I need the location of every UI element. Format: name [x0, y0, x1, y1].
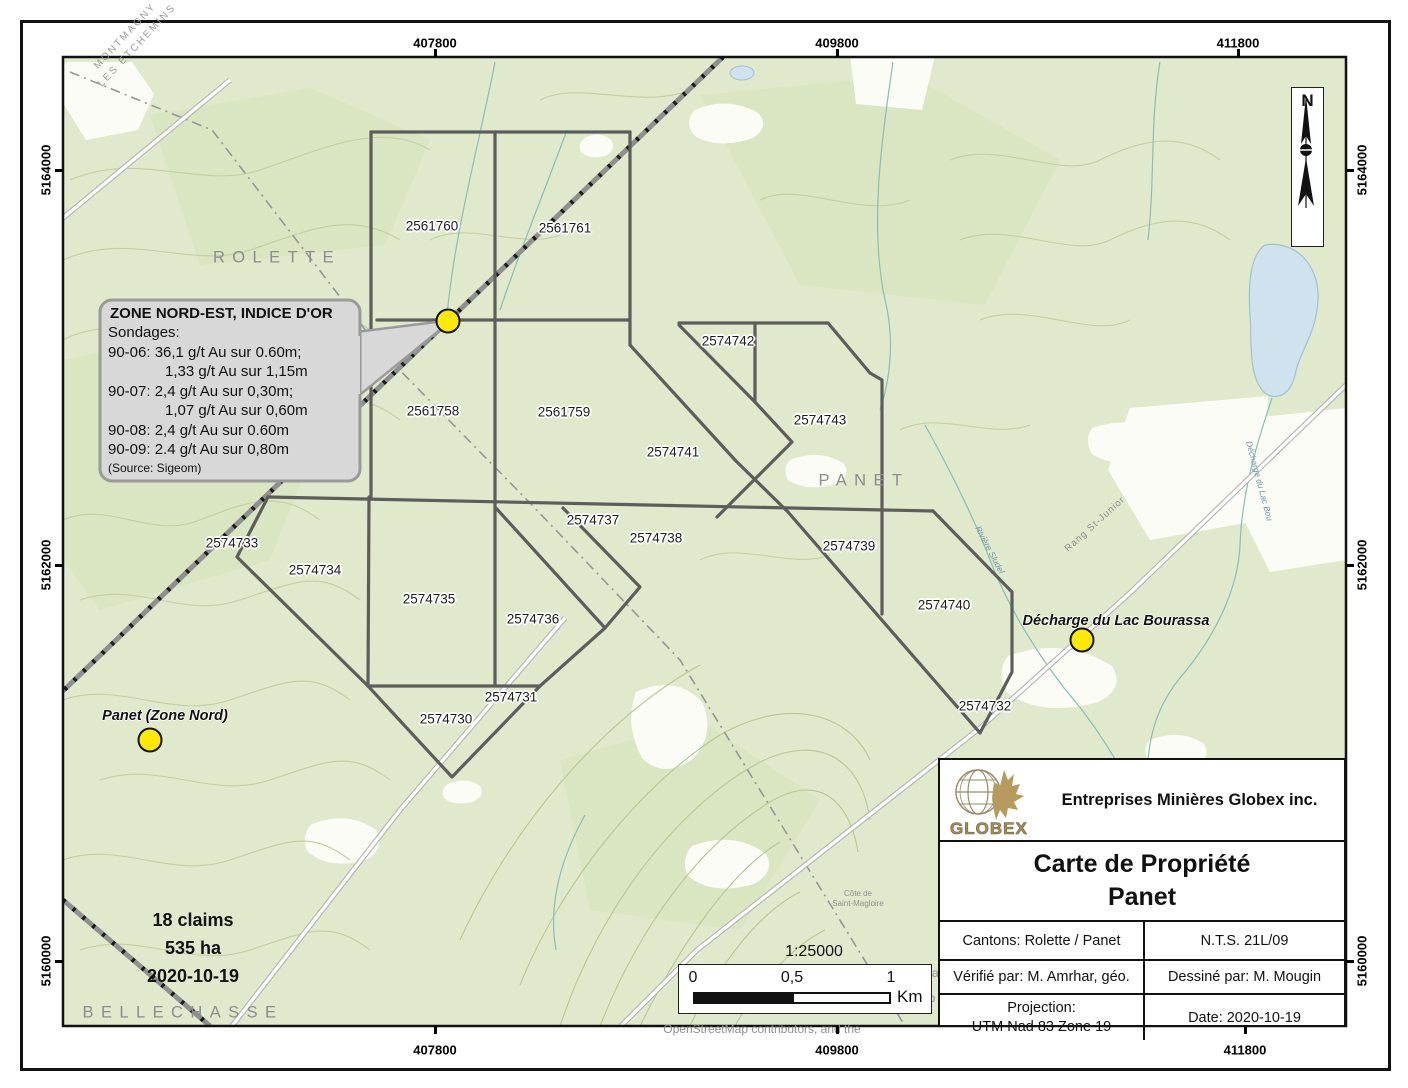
- poi-marker[interactable]: [1070, 628, 1095, 653]
- grid-tick: [434, 49, 437, 57]
- claim-label: 2574741: [647, 445, 700, 460]
- claim-label: 2574735: [403, 592, 456, 607]
- north-needle-icon: [1292, 88, 1320, 213]
- grid-coordinate: 411800: [1224, 1043, 1267, 1058]
- company-name: Entreprises Minières Globex inc.: [1035, 760, 1344, 840]
- scale-unit: Km: [897, 987, 923, 1007]
- scale-ratio: 1:25000: [785, 943, 843, 961]
- township-label: BELLECHASSE: [83, 1004, 284, 1023]
- callout-line: 1,33 g/t Au sur 1,15m: [108, 362, 354, 382]
- scale-05: 0,5: [781, 969, 803, 987]
- hill-label-1: Côte de: [844, 889, 873, 898]
- grid-tick: [1346, 960, 1354, 963]
- map-title-line2: Panet: [1108, 881, 1176, 914]
- claim-label: 2561761: [539, 221, 592, 236]
- grid-coordinate: 5162000: [39, 540, 54, 591]
- claim-label: 2574743: [794, 413, 847, 428]
- scale-bar-white-segment: [792, 992, 891, 1004]
- grid-coordinate: 5164000: [1355, 145, 1370, 196]
- globex-logo-icon: GLOBEX: [946, 762, 1034, 838]
- scale-0: 0: [689, 969, 698, 987]
- verified-cell: Vérifié par: M. Amrhar, géo.: [940, 961, 1145, 993]
- grid-coordinate: 5164000: [39, 145, 54, 196]
- summary-date: 2020-10-19: [147, 962, 239, 990]
- drawn-cell: Dessiné par: M. Mougin: [1145, 961, 1344, 993]
- map-sheet: Rang St-Junior Rivière Sludel Décharge d…: [0, 0, 1408, 1088]
- claim-label: 2574738: [630, 531, 683, 546]
- scale-1: 1: [887, 969, 896, 987]
- title-block: GLOBEX Entreprises Minières Globex inc. …: [938, 758, 1346, 1027]
- grid-coordinate: 5162000: [1355, 540, 1370, 591]
- date-cell: Date: 2020-10-19: [1145, 995, 1344, 1040]
- scale-bar-black-segment: [693, 992, 792, 1004]
- attribution-line: OpenStreetMap contributors, and the: [663, 1022, 860, 1036]
- claim-label: 2561758: [407, 404, 460, 419]
- poi-label: Panet (Zone Nord): [102, 708, 228, 724]
- projection-cell: Projection: UTM Nad 83 Zone 19: [940, 995, 1145, 1040]
- gold-showing-marker[interactable]: [436, 309, 461, 334]
- claim-label: 2574742: [702, 334, 755, 349]
- claim-label: 2574731: [485, 690, 538, 705]
- scale-bar: 0 0,5 1 Km: [678, 964, 932, 1014]
- callout-line: 90-07: 2,4 g/t Au sur 0,30m;: [108, 382, 354, 402]
- claim-label: 2574736: [507, 612, 560, 627]
- claim-label: 2574739: [823, 539, 876, 554]
- callout-lines: Sondages:90-06: 36,1 g/t Au sur 0.60m;1,…: [108, 323, 354, 460]
- globex-logo-text: GLOBEX: [950, 819, 1028, 838]
- map-title: Carte de Propriété Panet: [940, 842, 1344, 922]
- grid-coordinate: 5160000: [1355, 936, 1370, 987]
- grid-tick: [1346, 169, 1354, 172]
- map-title-line1: Carte de Propriété: [1034, 848, 1251, 881]
- claim-label: 2561760: [406, 219, 459, 234]
- grid-tick: [55, 960, 63, 963]
- summary-area: 535 ha: [147, 934, 239, 962]
- cantons-cell: Cantons: Rolette / Panet: [940, 922, 1145, 959]
- projection-label: Projection:: [972, 999, 1111, 1018]
- grid-tick: [836, 49, 839, 57]
- callout-source: (Source: Sigeom): [108, 461, 354, 475]
- claim-label: 2574730: [420, 712, 473, 727]
- drill-results-callout: ZONE NORD-EST, INDICE D'OR Sondages:90-0…: [108, 303, 354, 475]
- nts-cell: N.T.S. 21L/09: [1145, 922, 1344, 959]
- poi-marker[interactable]: [138, 728, 163, 753]
- grid-tick: [1346, 564, 1354, 567]
- grid-tick: [55, 169, 63, 172]
- claim-label: 2574732: [959, 699, 1012, 714]
- grid-tick: [1237, 49, 1240, 57]
- callout-title: ZONE NORD-EST, INDICE D'OR: [110, 305, 354, 322]
- title-block-header: GLOBEX Entreprises Minières Globex inc.: [940, 760, 1344, 842]
- grid-tick: [434, 1026, 437, 1034]
- grid-tick: [55, 564, 63, 567]
- grid-coordinate: 409800: [815, 1043, 858, 1058]
- callout-line: 90-06: 36,1 g/t Au sur 0.60m;: [108, 343, 354, 363]
- projection-value: UTM Nad 83 Zone 19: [972, 1018, 1111, 1037]
- callout-line: 90-08: 2,4 g/t Au sur 0.60m: [108, 421, 354, 441]
- callout-line: Sondages:: [108, 323, 354, 343]
- grid-tick: [836, 1026, 839, 1034]
- poi-label: Décharge du Lac Bourassa: [1023, 613, 1210, 629]
- claim-label: 2574733: [206, 536, 259, 551]
- claim-label: 2574734: [289, 563, 342, 578]
- callout-line: 90-09: 2.4 g/t Au sur 0,80m: [108, 440, 354, 460]
- township-label: ROLETTE: [213, 249, 341, 268]
- north-arrow: N: [1291, 87, 1324, 247]
- claim-label: 2561759: [538, 405, 591, 420]
- summary-claims: 18 claims: [147, 906, 239, 934]
- claim-label: 2574737: [567, 513, 620, 528]
- grid-coordinate: 407800: [413, 1043, 456, 1058]
- hill-label-2: Saint-Magloire: [832, 899, 884, 908]
- callout-line: 1,07 g/t Au sur 0,60m: [108, 401, 354, 421]
- claims-summary: 18 claims 535 ha 2020-10-19: [147, 906, 239, 990]
- claim-label: 2574740: [918, 598, 971, 613]
- township-label: PANET: [819, 472, 910, 491]
- grid-coordinate: 5160000: [39, 936, 54, 987]
